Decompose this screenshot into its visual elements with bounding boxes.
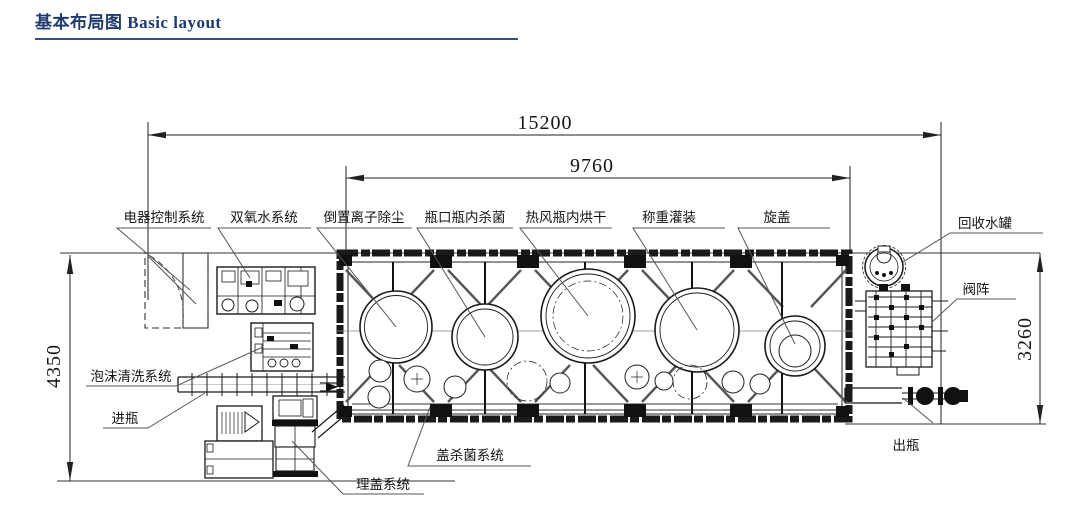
label-cap-arranging-system: 理盖系统: [356, 477, 410, 493]
dim-overall-length: 15200: [518, 112, 573, 134]
label-capping: 旋盖: [764, 210, 791, 226]
dim-right-depth: 3260: [1014, 317, 1036, 361]
foam-cleaning-unit: [251, 323, 313, 371]
label-hot-air-drying: 热风瓶内烘干: [526, 210, 607, 226]
discharge-conveyor: [845, 387, 968, 405]
layout-diagram-svg: 15200 9760 4350 3260: [0, 0, 1068, 510]
label-valve-array: 阀阵: [963, 282, 990, 298]
recovery-water-tank: [863, 246, 906, 289]
basic-layout-drawing: 基本布局图 Basic layout 15200: [0, 0, 1068, 510]
valve-array-unit: [855, 284, 948, 375]
dim-main-machine-length: 9760: [570, 155, 614, 177]
label-recovery-water-tank: 回收水罐: [958, 216, 1012, 232]
label-cap-sterilizing-system: 盖杀菌系统: [436, 448, 504, 464]
electrical-control-cabinet: [145, 253, 208, 328]
dim-left-depth: 4350: [43, 344, 65, 388]
label-foam-cleaning-system: 泡沫清洗系统: [91, 369, 172, 385]
label-ion-dust-removal: 倒置离子除尘: [324, 209, 405, 226]
hydrogen-peroxide-unit: [217, 267, 315, 314]
label-electrical-control-system: 电器控制系统: [124, 210, 205, 226]
label-bottle-sterilizing: 瓶口瓶内杀菌: [425, 210, 506, 226]
infeed-conveyor: [178, 373, 345, 396]
label-weigh-filling: 称重灌装: [642, 210, 696, 226]
process-carousels: [360, 269, 825, 376]
label-hydrogen-peroxide-system: 双氧水系统: [230, 210, 298, 226]
cap-handling-machines: [205, 396, 350, 478]
label-bottle-in: 进瓶: [112, 411, 139, 427]
label-bottle-out: 出瓶: [893, 438, 920, 454]
